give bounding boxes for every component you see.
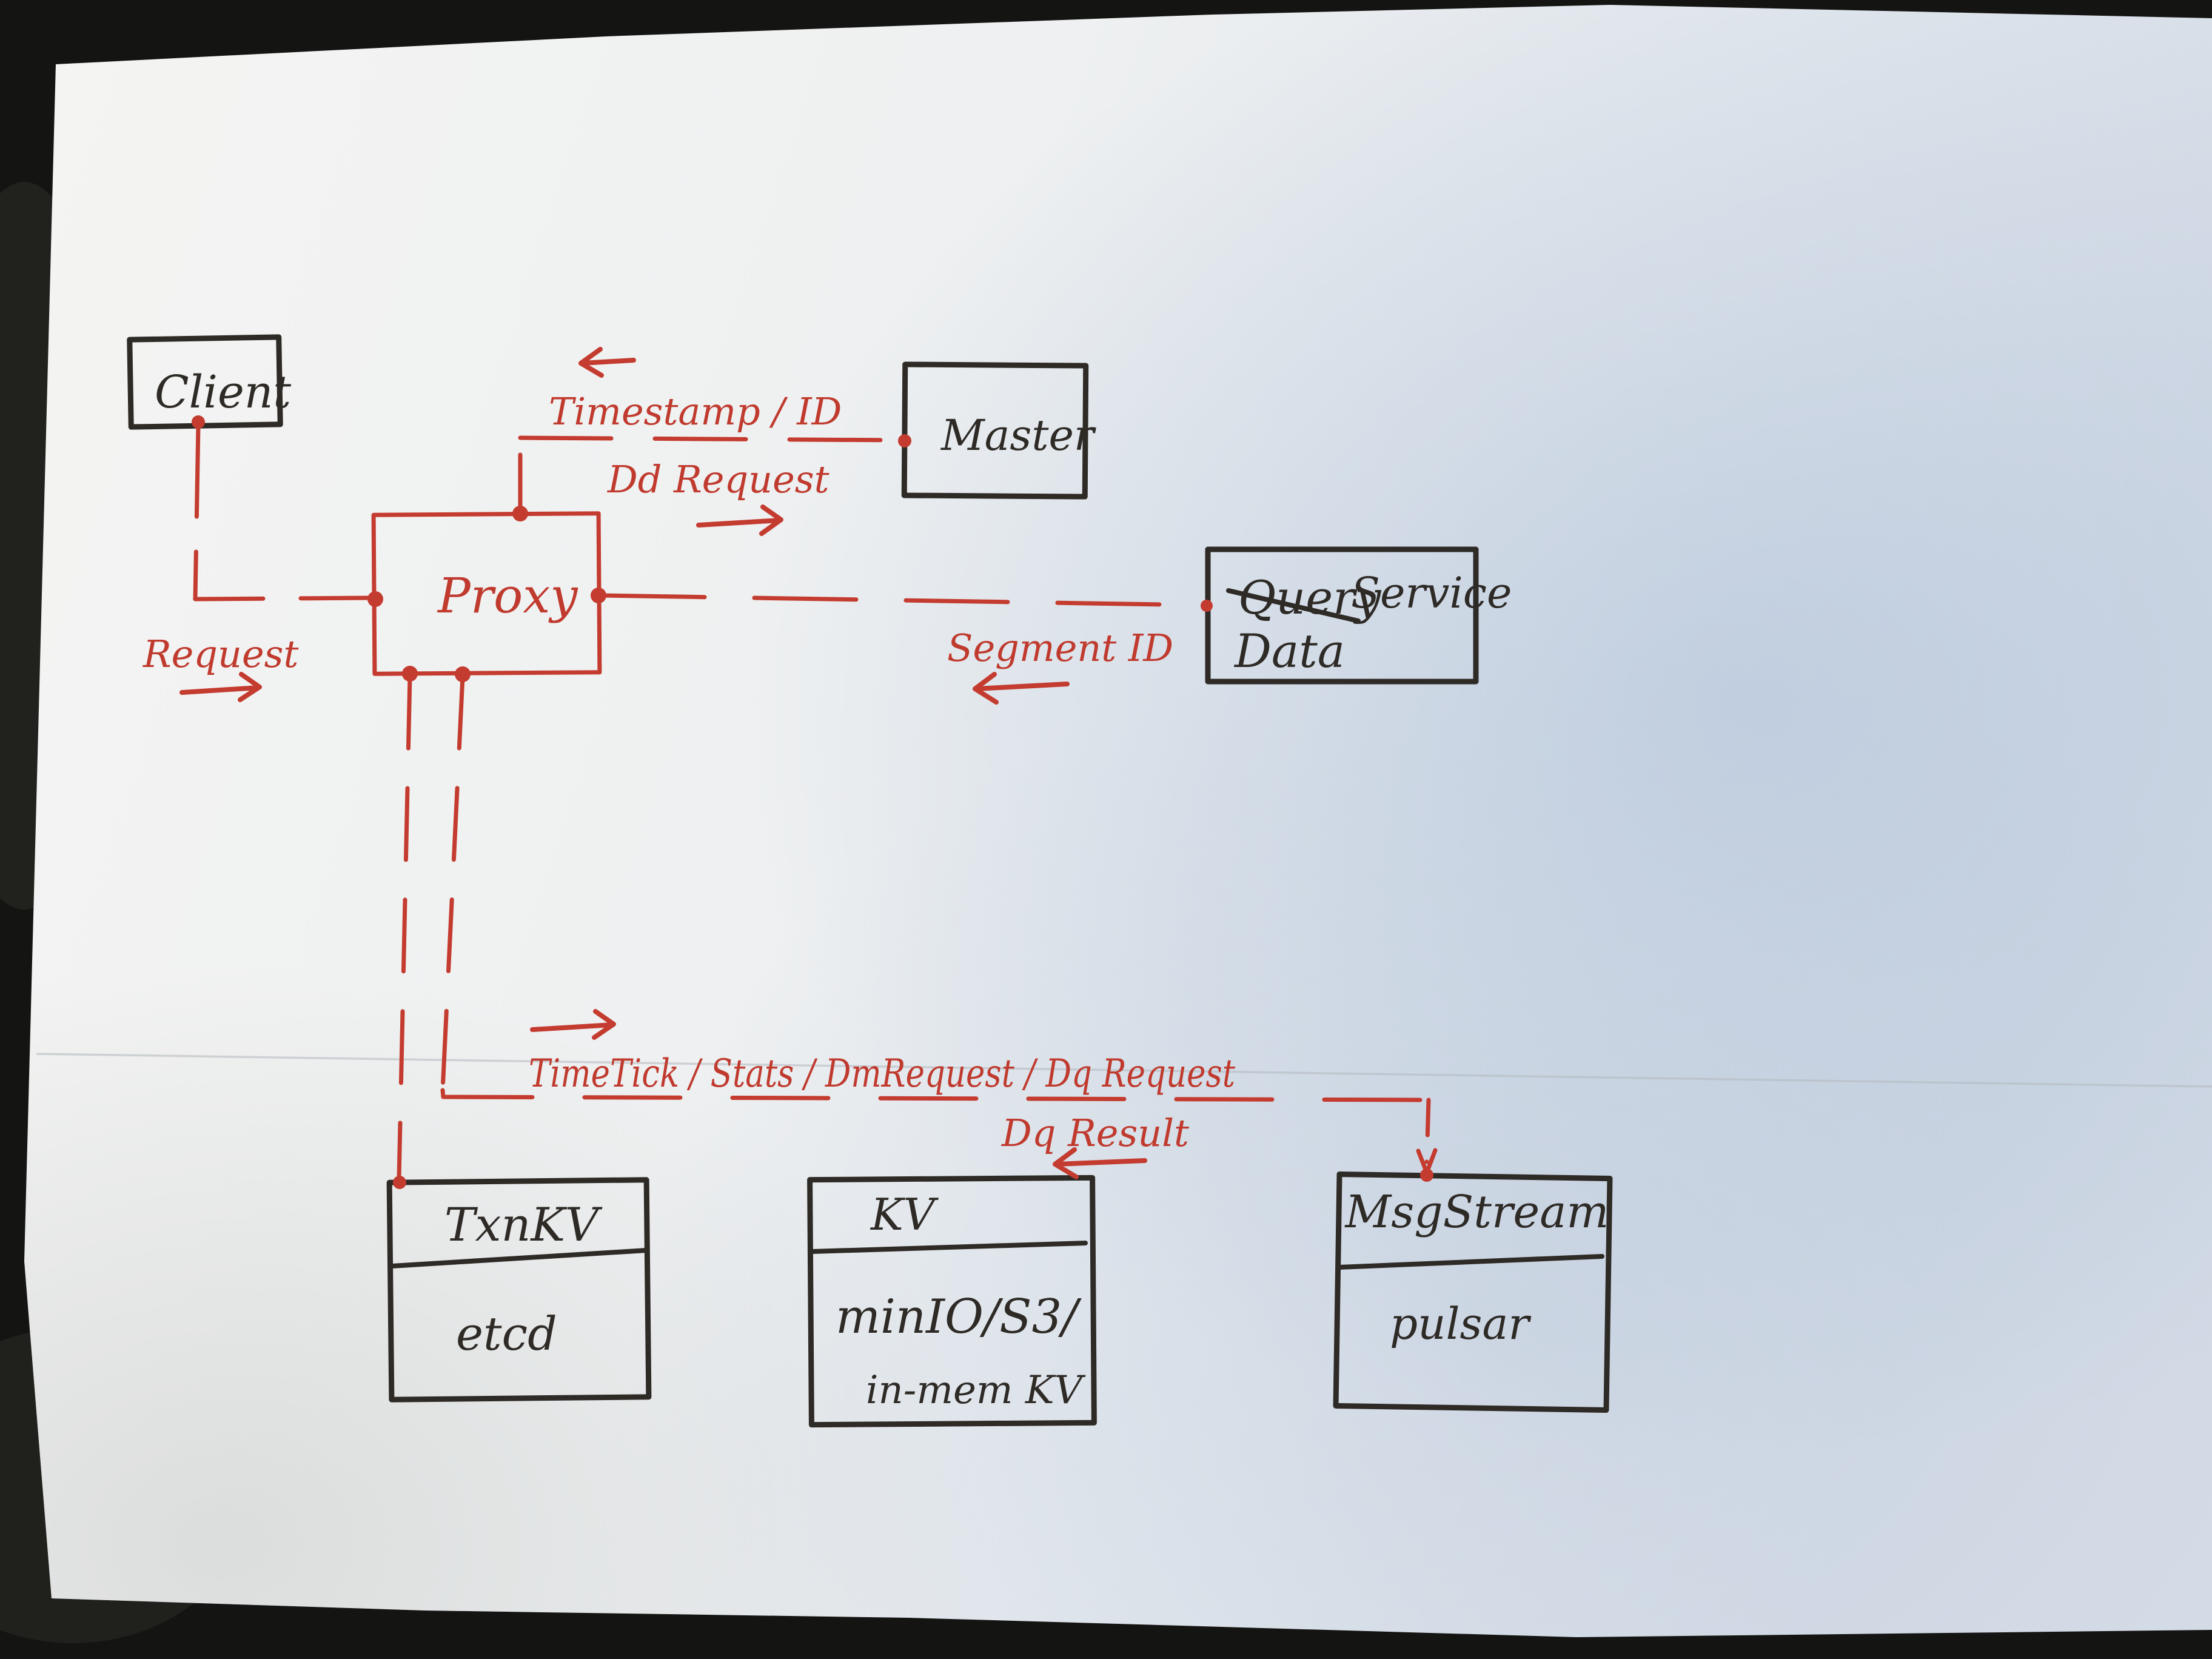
proxy-master-line <box>520 438 901 440</box>
kv-title: KV <box>870 1189 939 1240</box>
paper-sheet <box>0 0 2212 1659</box>
msg-stream-body: pulsar <box>1390 1298 1531 1349</box>
client-label: Client <box>155 366 291 418</box>
photo-of-hand-drawn-diagram: Client Master Query Service Data TxnKV e… <box>0 0 2212 1659</box>
data-service-replacement: Data <box>1233 624 1345 678</box>
msg-stream-title: MsgStream <box>1344 1186 1609 1238</box>
data-service-suffix: Service <box>1351 568 1512 618</box>
txn-kv-title: TxnKV <box>444 1198 603 1252</box>
diagram-canvas: Client Master Query Service Data TxnKV e… <box>0 0 2212 1659</box>
bus-label: TimeTick / Stats / DmRequest / Dq Reques… <box>529 1051 1235 1096</box>
master-port-left <box>898 434 911 447</box>
kv-body-line1: minIO/S3/ <box>836 1290 1082 1344</box>
paper-shadow-corner <box>0 0 2212 1659</box>
data-service-port-left <box>1201 600 1213 612</box>
txn-kv-port-top <box>393 1176 406 1189</box>
dq-result-label: Dq Result <box>1001 1111 1189 1155</box>
proxy-label: Proxy <box>437 568 578 624</box>
txn-kv-body: etcd <box>456 1307 557 1361</box>
timestamp-id-label: Timestamp / ID <box>549 389 842 434</box>
client-proxy-line-vertical <box>195 426 198 599</box>
segment-id-label: Segment ID <box>947 626 1173 670</box>
msg-stream-port-top <box>1420 1168 1433 1182</box>
master-label: Master <box>940 411 1096 460</box>
dd-request-label: Dd Request <box>607 457 829 501</box>
kv-body-line2: in-mem KV <box>866 1368 1086 1413</box>
request-label: Request <box>142 632 299 676</box>
